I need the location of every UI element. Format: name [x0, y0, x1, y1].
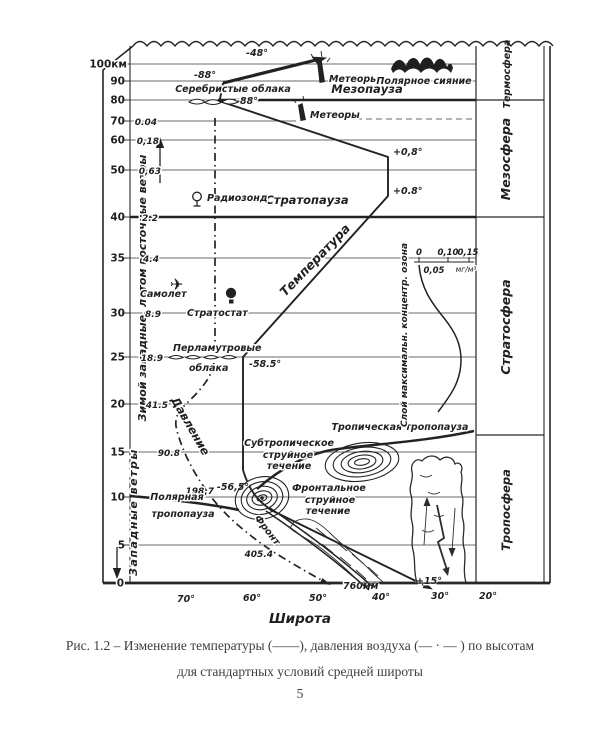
- pressure-value: 405.4: [244, 550, 273, 560]
- mesosphere-label: Мезосфера: [498, 118, 513, 200]
- front-line: [266, 508, 373, 590]
- lower-wind-label: Западные ветры: [127, 448, 140, 576]
- ozone-layer: 0 0,10 0,15 0,05 мг/м³ Слой максимальн. …: [400, 243, 479, 427]
- ozone-curve: [419, 265, 461, 412]
- pressure-value: 0,18: [137, 137, 159, 147]
- y-tick: 5: [118, 540, 125, 552]
- x-tick: 60°: [243, 593, 261, 604]
- precipitation-band: [290, 519, 384, 583]
- airplane-label: Самолет: [140, 289, 187, 300]
- x-axis-title: Широта: [269, 611, 331, 627]
- temp-80km: -88°: [236, 96, 258, 107]
- meteors-upper-label: Метеоры: [329, 74, 379, 85]
- temp-100km: -48°: [246, 48, 268, 59]
- radiosonde-icon: [193, 192, 202, 206]
- polar-tropopause-label-2: тропопауза: [151, 509, 214, 520]
- stratopause-label: Стратопауза: [265, 193, 349, 207]
- nacreous-clouds-label-1: Перламутровые: [173, 343, 262, 354]
- frontal-jet-label-1: Фронтальное: [292, 483, 366, 494]
- aurora-icon: [391, 58, 453, 74]
- meteor-icon-upper: [311, 51, 330, 83]
- frontal-jet-label-3: течение: [306, 506, 351, 517]
- figure-caption-line-1: Рис. 1.2 – Изменение температуры (——), д…: [0, 638, 600, 654]
- ozone-scale-0: 0: [416, 248, 422, 258]
- x-tick: 50°: [309, 593, 327, 604]
- temp-surface: +15°: [416, 576, 442, 587]
- x-tick: 70°: [177, 594, 195, 605]
- noctilucent-clouds-label: Серебристые облака: [175, 84, 291, 95]
- pressure-value: 2.2: [142, 214, 158, 224]
- lightning-icon: [437, 505, 447, 570]
- ozone-units: мг/м³: [456, 265, 477, 274]
- y-tick-zero: 0: [117, 578, 124, 590]
- x-tick: 40°: [371, 592, 390, 603]
- y-tick: 10: [110, 492, 125, 504]
- height-gridlines: [122, 64, 476, 545]
- y-tick: 20: [110, 399, 125, 411]
- nacreous-clouds-label-2: облака: [189, 363, 228, 374]
- ozone-layer-label: Слой максимальн. концентр. озона: [400, 243, 410, 427]
- y-tick: 25: [110, 352, 125, 364]
- pressure-value: 4.4: [142, 255, 159, 265]
- temperature-curve-label: Температура: [277, 221, 353, 299]
- temp-25km: -58.5°: [249, 359, 281, 370]
- stratostat-label: Стратостат: [187, 308, 248, 319]
- ozone-scale-005: 0,05: [424, 266, 445, 276]
- scanned-book-page: 100км 90 80 70 60 50 40 35 30 25 20 15 1…: [0, 0, 600, 750]
- y-tick: 40: [110, 212, 125, 224]
- y-tick: 70: [110, 116, 125, 128]
- stratosphere-label: Стратосфера: [498, 279, 513, 374]
- page-number: 5: [0, 686, 600, 702]
- figure-caption-line-2: для стандартных условий средней широты: [0, 664, 600, 680]
- frontal-jet-label-2: струйное: [305, 495, 356, 506]
- y-tick: 50: [110, 165, 125, 177]
- temp-55km: +0,8°: [393, 147, 423, 158]
- upper-wind-label: Зимой западные, летом восточные ветры: [136, 155, 149, 422]
- ozone-scale-015: 0,15: [458, 248, 479, 258]
- y-tick-100km: 100км: [89, 59, 127, 71]
- cumulonimbus-cloud: [410, 456, 466, 583]
- pressure-value: 90.8: [158, 449, 180, 459]
- y-tick: 15: [110, 447, 125, 459]
- y-tick: 30: [110, 308, 125, 320]
- subtropical-jet-label-1: Субтропическое: [244, 438, 334, 449]
- pressure-value: 8.9: [145, 310, 161, 320]
- thermosphere-label: Термосфера: [502, 40, 513, 109]
- y-tick: 60: [110, 135, 125, 147]
- temp-45km: +0.8°: [393, 186, 423, 197]
- x-tick: 30°: [431, 591, 449, 602]
- temp-90km: -88°: [194, 70, 216, 81]
- troposphere-label: Тропосфера: [499, 469, 513, 551]
- y-tick: 80: [110, 95, 125, 107]
- subtropical-jet-label-2: струйное: [263, 450, 314, 461]
- subtropical-jet-label-3: течение: [267, 461, 312, 472]
- wavy-top-border: [133, 42, 553, 47]
- meteors-lower-label: Метеоры: [310, 110, 360, 121]
- radiosonde-label: Радиозонд: [207, 193, 268, 204]
- y-tick: 90: [110, 76, 125, 88]
- y-tick: 35: [110, 253, 125, 265]
- x-tick: 20°: [479, 591, 497, 602]
- pressure-value: 18.9: [141, 354, 163, 364]
- down-arrow-icon: [113, 547, 121, 579]
- x-axis-labels: 70° 60° 50° 40° 30° 20° Широта: [177, 591, 497, 627]
- ozone-scale-010: 0,10: [438, 248, 459, 258]
- figure-1-2: 100км 90 80 70 60 50 40 35 30 25 20 15 1…: [0, 0, 600, 632]
- polar-tropopause-label-1: Полярная: [150, 492, 203, 503]
- noctilucent-clouds-icon: [189, 99, 238, 104]
- aurora-label: Полярное сияние: [376, 76, 472, 87]
- pressure-value: 41.5: [145, 401, 168, 411]
- stratostat-icon: [226, 288, 236, 304]
- pressure-value: 0.04: [135, 118, 157, 128]
- pressure-value: 0,63: [139, 167, 161, 177]
